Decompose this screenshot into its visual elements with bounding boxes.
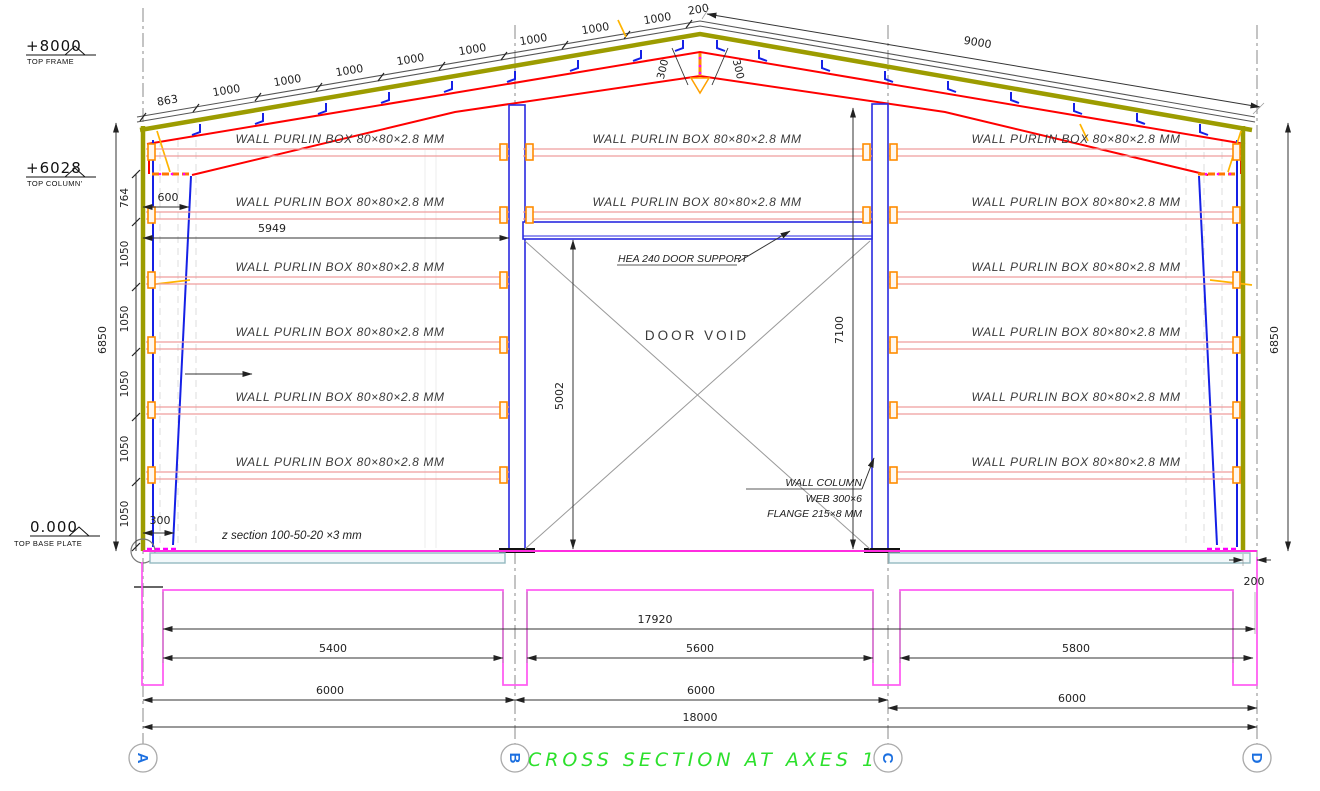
dim-18000: 18000 [683,711,718,724]
plinth-strip-right [889,553,1250,563]
axis-label-a: A [134,753,151,764]
elev-top-column-value: +6028 [26,159,82,177]
roof-cladding-band [140,34,1252,130]
roof-dim-1000-7: 1000 [581,20,611,37]
column-d-inner-flange [1199,176,1217,545]
elev-base-label: TOP BASE PLATE [14,539,82,548]
ridge-dim-300-left: 300 [655,58,671,80]
purlin-label-right-1: WALL PURLIN BOX 80×80×2.8 MM [971,132,1180,146]
purlin-label-left-4: WALL PURLIN BOX 80×80×2.8 MM [235,325,444,339]
purlin-label-mid-2: WALL PURLIN BOX 80×80×2.8 MM [592,195,801,209]
roof-dim-1000-4: 1000 [396,51,426,68]
purlin-label-right-4: WALL PURLIN BOX 80×80×2.8 MM [971,325,1180,339]
roof-structure [137,20,1255,175]
ridge-gusset [691,78,709,93]
rafter-bottom-chord [192,76,1208,175]
dim-600: 600 [158,191,179,204]
dim-300: 300 [150,514,171,527]
dimensions: 863 1000 1000 1000 1000 1000 1000 1000 1… [96,1,1288,727]
roof-dim-863: 863 [156,92,179,108]
roof-dim-1000-5: 1000 [458,41,488,58]
chain-1050-2: 1050 [119,306,131,333]
roof-dim-1000-2: 1000 [273,72,303,89]
wall-column-note-2: WEB 300×6 [806,493,862,505]
roof-dim-1000-8: 1000 [643,10,673,27]
roof-dim-1000-1: 1000 [212,82,242,99]
dim-7100: 7100 [833,316,846,344]
plinth-strip-left [150,553,505,563]
dim-5949: 5949 [258,222,286,235]
purlin-label-left-1: WALL PURLIN BOX 80×80×2.8 MM [235,132,444,146]
drawing-title: CROSS SECTION AT AXES 1 [528,749,878,771]
elev-top-frame-value: +8000 [26,37,82,55]
door-column-c [872,104,888,549]
purlin-label-right-2: WALL PURLIN BOX 80×80×2.8 MM [971,195,1180,209]
door-support-note: HEA 240 DOOR SUPPORT [618,253,749,265]
dim-5002: 5002 [553,382,566,410]
chain-1050-4: 1050 [119,436,131,463]
dim-5800: 5800 [1062,642,1090,655]
purlin-label-right-6: WALL PURLIN BOX 80×80×2.8 MM [971,455,1180,469]
wall-column-note-3: FLANGE 215×8 MM [767,508,862,520]
wall-column-note-1: WALL COLUMN [785,477,862,489]
chain-1050-3: 1050 [119,371,131,398]
ridge-dim-300-right: 300 [730,58,746,80]
elev-base-value: 0.000 [30,518,78,536]
chain-1050-1: 1050 [119,241,131,268]
axis-label-c: C [879,753,896,764]
cad-cross-section-drawing: DOOR VOID 863 1000 1000 1000 1000 1000 1… [0,0,1320,791]
purlin-label-right-3: WALL PURLIN BOX 80×80×2.8 MM [971,260,1180,274]
roof-dim-ticks [140,20,692,121]
purlin-label-left-3: WALL PURLIN BOX 80×80×2.8 MM [235,260,444,274]
dim-6000-bc: 6000 [687,684,715,697]
roof-dim-1000-6: 1000 [519,31,549,48]
axis-label-b: B [506,753,523,764]
dim-6000-ab: 6000 [316,684,344,697]
chain-1050-5: 1050 [119,501,131,528]
elev-top-column-label: TOP COLUMN' [27,179,83,188]
axis-label-d: D [1248,753,1265,764]
roof-dim-9000: 9000 [963,34,993,51]
dim-5400: 5400 [319,642,347,655]
eave-brace-left [157,131,170,172]
dim-6850-left: 6850 [96,326,109,354]
roof-dim-1000-3: 1000 [335,62,365,79]
dim-5600: 5600 [686,642,714,655]
door-void-label: DOOR VOID [645,328,749,343]
roof-dim-200: 200 [687,1,710,17]
drawing-canvas: DOOR VOID 863 1000 1000 1000 1000 1000 1… [0,0,1320,791]
roof-dim-line-9000 [707,14,1260,107]
z-section-note: z section 100-50-20 ×3 mm [221,530,362,542]
column-a-inner-flange [173,176,191,545]
purlin-label-left-2: WALL PURLIN BOX 80×80×2.8 MM [235,195,444,209]
foundation-outline [142,557,1257,685]
purlin-label-left-5: WALL PURLIN BOX 80×80×2.8 MM [235,390,444,404]
dim-17920: 17920 [638,613,673,626]
dim-6850-right: 6850 [1268,326,1281,354]
dim-200-right-base: 200 [1244,575,1265,588]
roof-sheet-inner [137,26,1255,122]
purlin-label-left-6: WALL PURLIN BOX 80×80×2.8 MM [235,455,444,469]
elevation-markers: +8000 TOP FRAME +6028 TOP COLUMN' 0.000 … [14,37,100,548]
purlin-label-right-5: WALL PURLIN BOX 80×80×2.8 MM [971,390,1180,404]
door-column-b [509,105,525,549]
dim-6000-cd: 6000 [1058,692,1086,705]
foundation [134,551,1257,685]
purlin-label-mid-1: WALL PURLIN BOX 80×80×2.8 MM [592,132,801,146]
chain-764: 764 [119,188,131,208]
elev-top-frame-label: TOP FRAME [27,57,74,66]
